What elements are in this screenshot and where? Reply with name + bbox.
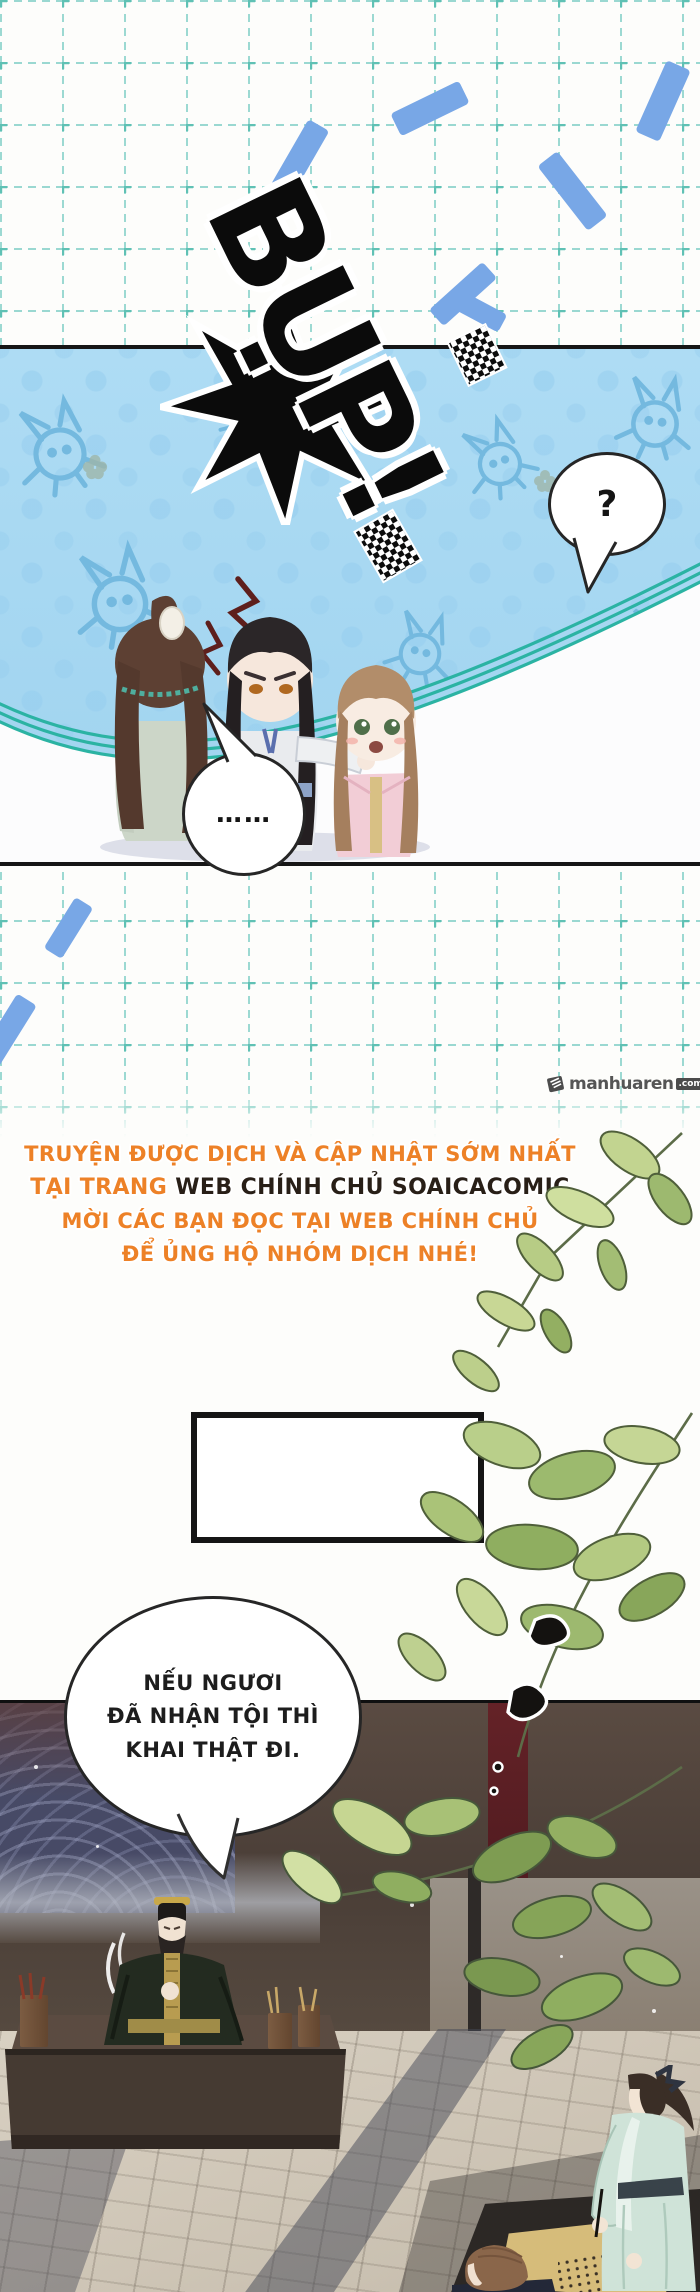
question-bubble-text: ? xyxy=(597,484,618,525)
chibi-right-girl xyxy=(334,665,419,857)
raised-hand xyxy=(161,1982,179,2000)
ink-sfx-marks xyxy=(491,1616,569,1795)
hand xyxy=(626,2253,642,2269)
gold-sash xyxy=(128,2019,220,2033)
ellipsis-bubble: …… xyxy=(182,752,306,876)
notice-line-2-orange: TẠI TRANG xyxy=(30,1175,175,1200)
hanging-sleeve xyxy=(592,2125,616,2226)
dialogue-line-3: KHAI THẬT ĐI. xyxy=(107,1734,319,1768)
leaf-cluster-top xyxy=(447,1122,700,1398)
snow-dot xyxy=(96,1845,99,1848)
magistrate-figure xyxy=(92,1895,262,2055)
snow-dot xyxy=(34,1765,38,1769)
panel-chibi-scene xyxy=(0,345,700,866)
question-bubble-tail xyxy=(566,536,626,598)
dialogue-bubble-tail xyxy=(168,1812,258,1884)
scribe-figure xyxy=(572,2065,700,2292)
ellipsis-bubble-text: …… xyxy=(216,799,272,829)
ellipsis-bubble-tail xyxy=(190,700,270,766)
dialogue-line-2: ĐÃ NHẬN TỘI THÌ xyxy=(107,1700,319,1734)
leaf-cluster-bottom xyxy=(274,1788,685,2075)
brush-pot-sticks xyxy=(16,1971,56,2001)
foliage-overlay xyxy=(250,1115,700,2075)
dialogue-line-1: NẾU NGƯƠI xyxy=(107,1667,319,1701)
brush-pot xyxy=(20,1995,48,2047)
writing-hand xyxy=(592,2217,608,2233)
comic-page: BỤP! ? …… manhuaren .com TRUYỆN ĐƯỢC DỊC… xyxy=(0,0,700,2292)
grid-background-top xyxy=(0,0,700,345)
dialogue-bubble: NẾU NGƯƠI ĐÃ NHẬN TỘI THÌ KHAI THẬT ĐI. xyxy=(64,1596,362,1838)
motion-line xyxy=(108,1943,114,1993)
watermark-name: manhuaren xyxy=(569,1074,673,1094)
watermark-tld: .com xyxy=(676,1078,700,1090)
book-logo-icon xyxy=(546,1074,566,1094)
branches xyxy=(328,1133,692,1897)
watermark: manhuaren .com xyxy=(546,1074,700,1094)
witness-head xyxy=(452,2241,556,2292)
